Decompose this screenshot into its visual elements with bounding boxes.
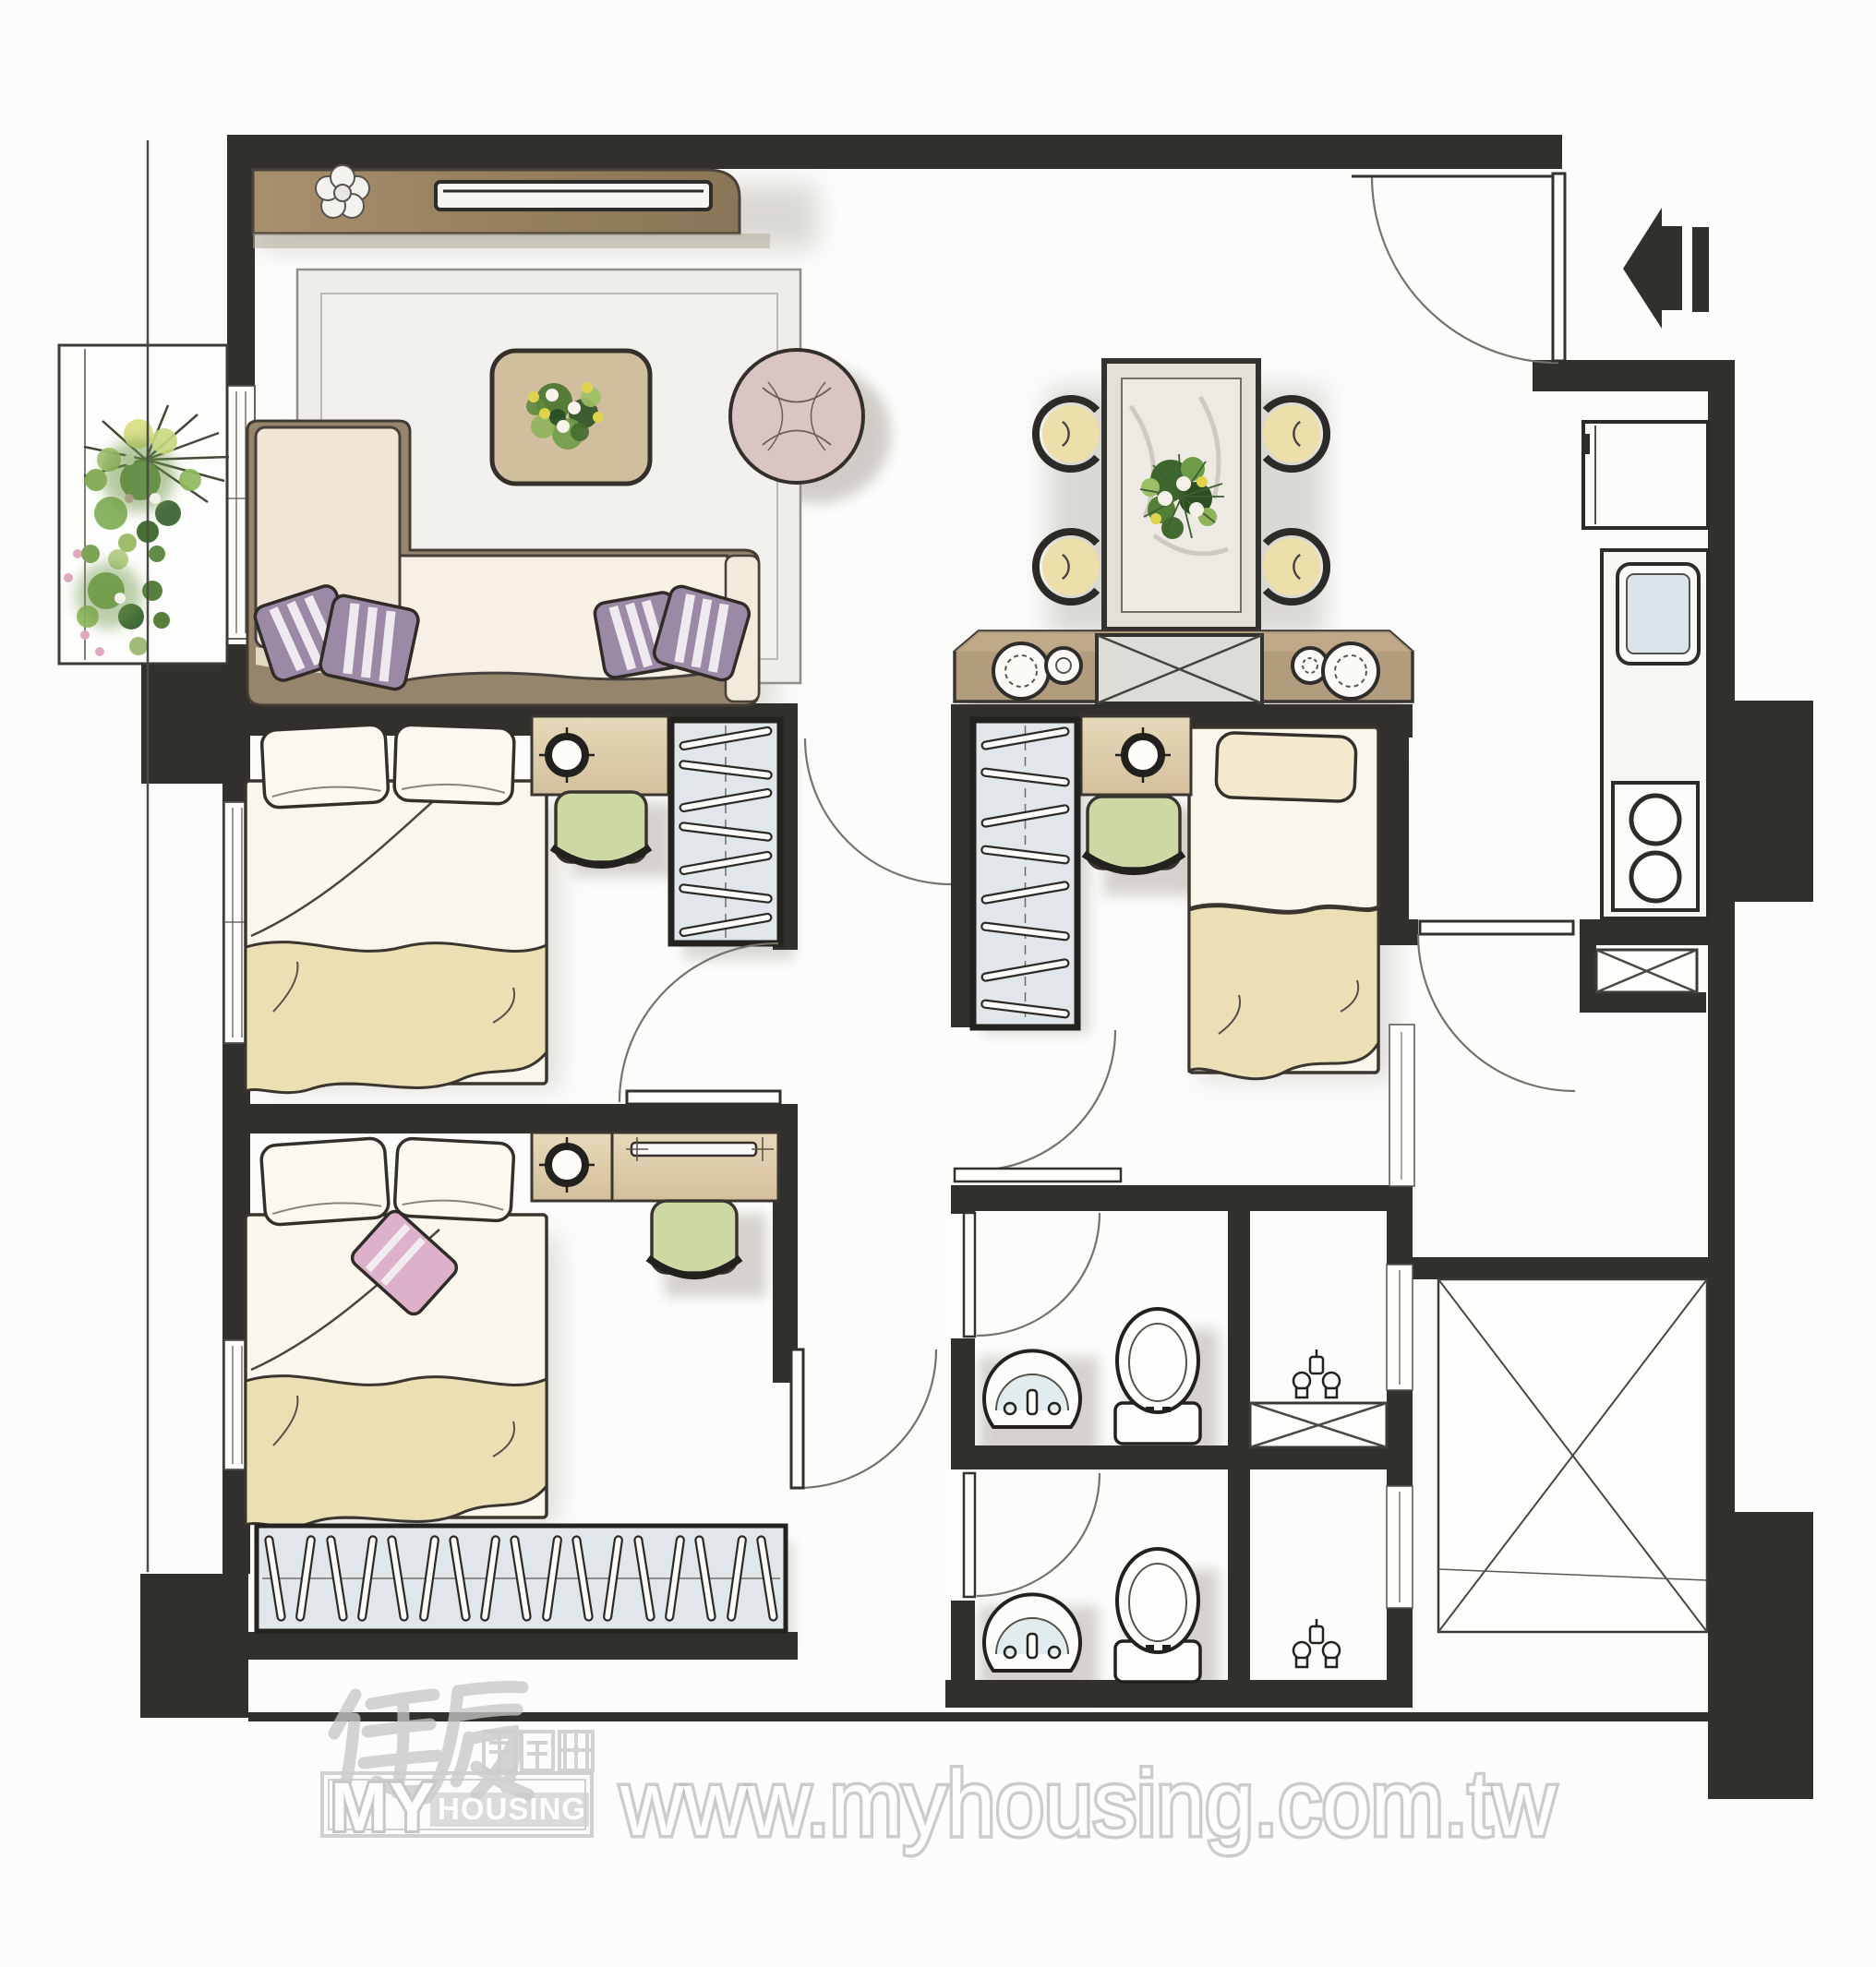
svg-text:HOUSING: HOUSING (438, 1792, 586, 1826)
svg-text:MY: MY (331, 1769, 437, 1845)
svg-text:www.myhousing.com.tw: www.myhousing.com.tw (619, 1752, 1557, 1855)
